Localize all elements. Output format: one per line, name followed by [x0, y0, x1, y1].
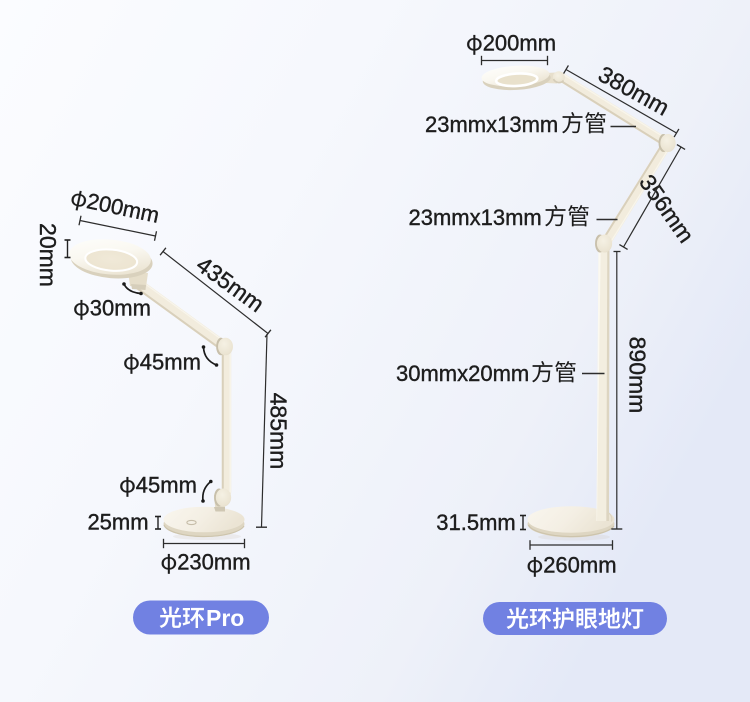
svg-text:230mm: 230mm: [177, 549, 250, 574]
svg-text:45mm: 45mm: [140, 349, 201, 374]
svg-text:45mm: 45mm: [136, 472, 197, 497]
svg-text:30mm: 30mm: [90, 295, 151, 320]
svg-text:31.5mm: 31.5mm: [436, 510, 515, 535]
svg-text:Pro: Pro: [206, 605, 244, 631]
svg-text:20mm: 20mm: [35, 223, 61, 287]
svg-text:23mmx13mm: 23mmx13mm: [425, 112, 558, 137]
svg-text:200mm: 200mm: [483, 30, 556, 55]
svg-text:25mm: 25mm: [87, 509, 148, 534]
svg-text:485mm: 485mm: [265, 393, 291, 470]
svg-text:890mm: 890mm: [624, 337, 650, 414]
svg-text:260mm: 260mm: [543, 552, 616, 577]
svg-text:23mmx13mm: 23mmx13mm: [409, 205, 542, 230]
svg-text:30mmx20mm: 30mmx20mm: [396, 361, 529, 386]
